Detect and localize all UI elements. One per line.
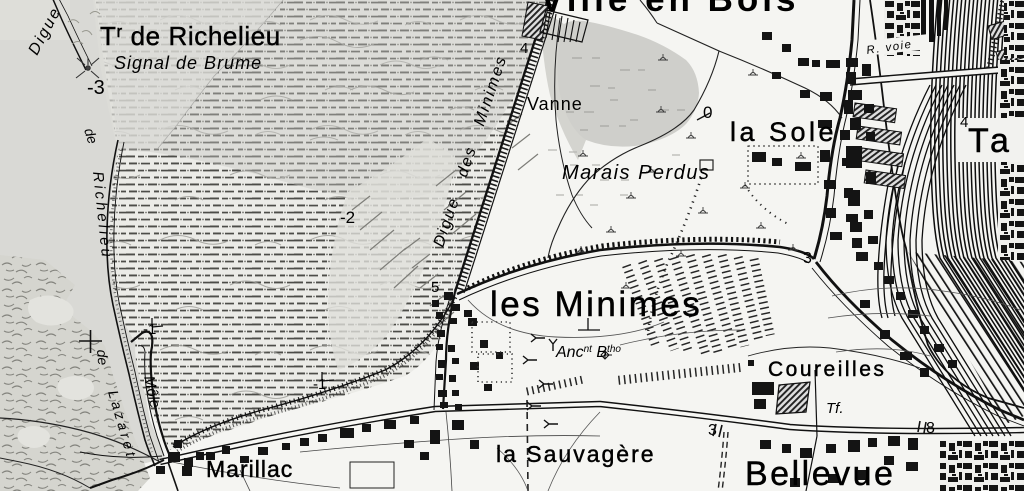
svg-text:4: 4 (960, 114, 968, 131)
svg-text:3: 3 (803, 250, 812, 267)
svg-text:Ville en Bois: Ville en Bois (540, 0, 800, 19)
svg-text:Marais Perdus: Marais Perdus (562, 162, 710, 184)
svg-text:Marillac: Marillac (206, 456, 293, 482)
svg-text:Coureilles: Coureilles (768, 358, 886, 381)
svg-text:Ta: Ta (968, 122, 1014, 160)
svg-text:-2: -2 (340, 208, 355, 227)
svg-text:la Sauvagère: la Sauvagère (496, 441, 656, 467)
svg-text:5: 5 (431, 279, 439, 296)
svg-text:les Minimes: les Minimes (490, 285, 702, 324)
svg-text:Tr de Richelieu: Tr de Richelieu (100, 21, 281, 51)
svg-text:-1: -1 (143, 321, 156, 338)
svg-text:de: de (94, 349, 111, 366)
svg-text:4: 4 (520, 40, 528, 57)
svg-text:0: 0 (703, 103, 712, 122)
svg-text:-1: -1 (313, 376, 326, 393)
svg-text:8: 8 (926, 420, 935, 437)
svg-text:Bellevue: Bellevue (745, 455, 895, 491)
svg-text:-3: -3 (87, 77, 105, 99)
svg-text:Vanne: Vanne (527, 94, 583, 114)
svg-text:Signal de Brume: Signal de Brume (114, 53, 262, 73)
svg-text:Tf.: Tf. (826, 400, 844, 417)
svg-text:la Sole: la Sole (730, 117, 837, 147)
